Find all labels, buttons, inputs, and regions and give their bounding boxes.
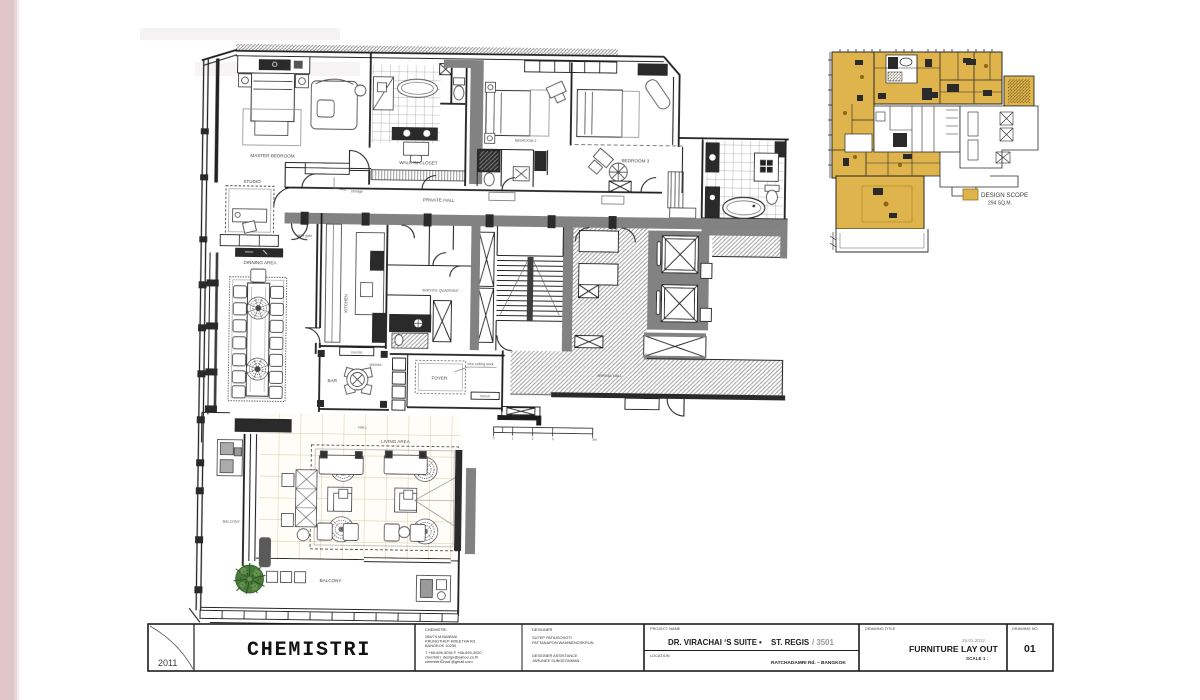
svg-text:CHEMISTRI: CHEMISTRI [247, 639, 371, 662]
svg-text:new ceiling work: new ceiling work [467, 362, 494, 366]
svg-text:bench: bench [480, 394, 490, 398]
svg-text:PRIVATE HALL: PRIVATE HALL [423, 197, 455, 202]
svg-text:LOCATION: LOCATION [650, 653, 670, 658]
svg-text:DESIGNER: DESIGNER [532, 627, 553, 632]
svg-text:night gate: night gate [296, 234, 312, 238]
svg-text:glasses: glasses [369, 363, 381, 367]
svg-text:19.01.2012: 19.01.2012 [962, 638, 985, 643]
svg-text:MASTER BEDROOM: MASTER BEDROOM [250, 153, 294, 159]
svg-text:SERVICE QUADRANT: SERVICE QUADRANT [422, 288, 460, 293]
svg-text:•: • [759, 638, 762, 647]
svg-text:3: 3 [552, 437, 554, 441]
svg-text:PROJECT NAME: PROJECT NAME [650, 626, 681, 631]
svg-text:KITCHEN: KITCHEN [343, 294, 348, 312]
svg-text:ARRIVAL HALL: ARRIVAL HALL [597, 374, 622, 378]
svg-text:JARUNEE SUBGEONMAN: JARUNEE SUBGEONMAN [532, 658, 580, 663]
svg-text:LIVING AREA: LIVING AREA [381, 439, 411, 444]
svg-text:RATCHADAMRI Rd. – BANGKOK: RATCHADAMRI Rd. – BANGKOK [771, 660, 846, 666]
svg-text:BEDROOM 3: BEDROOM 3 [622, 158, 650, 163]
svg-text:counter: counter [351, 350, 364, 354]
svg-text:BANGKOK 10250: BANGKOK 10250 [425, 643, 457, 648]
svg-text:DESIGN SCOPE: DESIGN SCOPE [981, 192, 1028, 199]
svg-text:DRAWING TITLE: DRAWING TITLE [865, 626, 896, 631]
svg-text:/ 3501: / 3501 [812, 638, 835, 647]
svg-text:1: 1 [512, 437, 514, 441]
svg-text:0: 0 [493, 436, 495, 440]
svg-text:DRAWING NO.: DRAWING NO. [1012, 626, 1039, 631]
svg-text:DR. VIRACHAI ‘S SUITE: DR. VIRACHAI ‘S SUITE [668, 638, 757, 647]
svg-text:CHEMISTRI: CHEMISTRI [425, 627, 446, 632]
svg-text:chemistriChad @gmail.com: chemistriChad @gmail.com [425, 659, 473, 664]
svg-text:BAR: BAR [328, 378, 338, 383]
svg-text:FOYER: FOYER [431, 376, 448, 381]
svg-text:SCALE 1 :: SCALE 1 : [966, 656, 989, 661]
svg-text:BALCONY: BALCONY [320, 578, 342, 583]
svg-text:DINNING AREA: DINNING AREA [243, 260, 277, 265]
svg-text:FURNITURE LAY OUT: FURNITURE LAY OUT [909, 644, 999, 654]
svg-text:5m: 5m [592, 438, 597, 442]
svg-text:BALCONY: BALCONY [223, 520, 241, 524]
svg-text:PATTANAPON WANINENGSKRUN: PATTANAPON WANINENGSKRUN [532, 640, 594, 645]
svg-text:294 SQ.M.: 294 SQ.M. [988, 201, 1012, 207]
svg-text:WALK IN CLOSET: WALK IN CLOSET [399, 160, 438, 166]
svg-text:01: 01 [1024, 643, 1036, 655]
svg-text:ST. REGIS: ST. REGIS [771, 638, 809, 647]
svg-text:storage: storage [351, 189, 363, 193]
svg-text:BEDROOM 2: BEDROOM 2 [515, 139, 537, 143]
svg-text:HALL: HALL [358, 426, 367, 430]
svg-text:2011: 2011 [158, 658, 177, 668]
svg-text:STUDIO: STUDIO [243, 179, 261, 184]
svg-text:2: 2 [532, 437, 534, 441]
